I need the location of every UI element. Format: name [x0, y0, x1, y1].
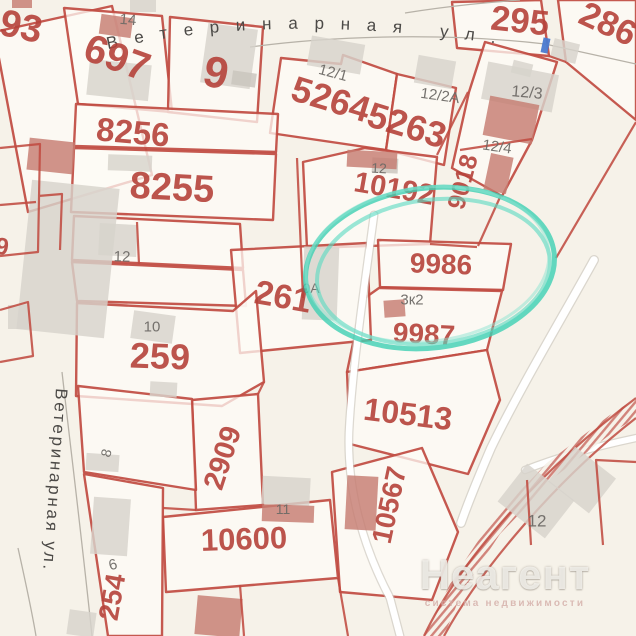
house-number-10: 10: [144, 319, 161, 336]
gray-building: [150, 381, 178, 397]
house-number-12: 12: [528, 512, 547, 531]
parcel-label-8255: 8255: [129, 165, 216, 211]
gray-building: [90, 497, 131, 556]
parcel-label-9986: 9986: [409, 247, 472, 280]
parcel-label-8256: 8256: [95, 110, 171, 153]
gray-building: [8, 305, 30, 329]
parcel-label-295: 295: [489, 0, 551, 43]
map-viewport[interactable]: Ветеринарная ул.Ветеринарная ул.93697982…: [0, 0, 636, 636]
parcel-8-par: [78, 386, 196, 490]
parcel-label-10600: 10600: [200, 520, 287, 558]
red-building: [26, 138, 75, 175]
house-number-12: 12: [371, 160, 388, 177]
house-number-3к2: 3к2: [400, 292, 423, 309]
house-number-12/3: 12/3: [511, 83, 544, 103]
house-number-11: 11: [276, 501, 291, 517]
red-building: [194, 595, 242, 636]
gray-building: [130, 0, 156, 12]
gray-building: [16, 180, 119, 338]
gray-building: [66, 609, 96, 636]
cadastral-map[interactable]: Ветеринарная ул.Ветеринарная ул.93697982…: [0, 0, 636, 636]
parcel-label-259: 259: [129, 334, 190, 377]
house-number-12: 12: [113, 248, 130, 266]
house-number-14: 14: [119, 11, 137, 29]
